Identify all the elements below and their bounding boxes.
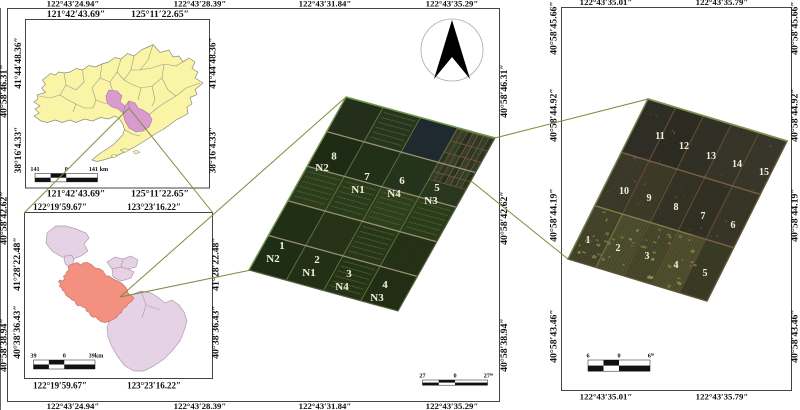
svg-text:40°58′46.31″: 40°58′46.31″	[499, 64, 510, 118]
svg-text:5: 5	[703, 268, 708, 279]
svg-text:11: 11	[655, 131, 664, 142]
svg-text:141 km: 141 km	[89, 166, 109, 173]
svg-text:N3: N3	[370, 292, 384, 304]
svg-text:15: 15	[759, 167, 769, 178]
svg-text:41°44′48.36″: 41°44′48.36″	[13, 37, 24, 88]
svg-text:40°58′44.92″: 40°58′44.92″	[549, 88, 560, 142]
svg-text:122°43′35.79″: 122°43′35.79″	[696, 392, 749, 402]
svg-text:40°58′38.94″: 40°58′38.94″	[499, 318, 510, 372]
svg-text:6: 6	[731, 220, 736, 231]
svg-text:122°19′59.67″: 122°19′59.67″	[33, 381, 87, 391]
svg-text:12: 12	[679, 141, 689, 152]
svg-text:N4: N4	[335, 281, 349, 293]
svg-text:40°58′44.19″: 40°58′44.19″	[790, 188, 800, 242]
svg-text:122°43′35.01″: 122°43′35.01″	[580, 0, 633, 7]
svg-text:122°43′35.79″: 122°43′35.79″	[696, 0, 749, 7]
svg-text:6: 6	[399, 175, 405, 187]
svg-text:4: 4	[674, 260, 679, 271]
svg-text:4: 4	[382, 279, 388, 291]
svg-text:40°58′42.62″: 40°58′42.62″	[0, 191, 10, 245]
svg-text:13: 13	[706, 151, 716, 162]
svg-text:41°44′48.36″: 41°44′48.36″	[208, 37, 219, 88]
svg-text:N2: N2	[315, 162, 329, 174]
svg-text:122°43′31.84″: 122°43′31.84″	[299, 401, 352, 410]
svg-text:0: 0	[63, 353, 66, 360]
svg-text:27: 27	[419, 373, 425, 380]
svg-text:141: 141	[30, 166, 39, 173]
svg-text:40°38′36.43″: 40°38′36.43″	[12, 305, 23, 359]
svg-text:38°16′4.33″: 38°16′4.33″	[208, 127, 219, 174]
svg-text:40°58′44.92″: 40°58′44.92″	[790, 88, 800, 142]
svg-text:2: 2	[616, 243, 621, 254]
svg-text:1: 1	[586, 235, 591, 246]
svg-text:N4: N4	[387, 188, 401, 200]
svg-text:6: 6	[586, 353, 589, 360]
svg-text:7: 7	[701, 211, 706, 222]
svg-text:123°23′16.22″: 123°23′16.22″	[127, 202, 181, 212]
svg-text:122°19′59.67″: 122°19′59.67″	[33, 202, 87, 212]
svg-text:122°43′35.01″: 122°43′35.01″	[580, 392, 633, 402]
svg-text:1: 1	[279, 240, 285, 252]
svg-text:38°16′4.33″: 38°16′4.33″	[13, 127, 24, 174]
svg-text:N1: N1	[351, 184, 364, 196]
svg-text:N1: N1	[302, 267, 315, 279]
svg-text:121°42′43.69″: 121°42′43.69″	[47, 189, 106, 200]
svg-text:41°28′22.48″: 41°28′22.48″	[211, 237, 222, 291]
svg-text:122°43′24.94″: 122°43′24.94″	[47, 401, 100, 410]
svg-text:125°11′22.65″: 125°11′22.65″	[131, 189, 189, 200]
svg-text:122°43′28.39″: 122°43′28.39″	[174, 401, 227, 410]
svg-text:N2: N2	[266, 253, 280, 265]
svg-text:40°58′46.31″: 40°58′46.31″	[0, 64, 10, 118]
svg-text:122°43′35.29″: 122°43′35.29″	[426, 401, 479, 410]
svg-text:14: 14	[732, 159, 742, 170]
svg-text:27m: 27m	[484, 371, 494, 380]
svg-text:125°11′22.65″: 125°11′22.65″	[131, 9, 189, 20]
svg-text:122°43′24.94″: 122°43′24.94″	[47, 0, 100, 9]
svg-text:39km: 39km	[89, 353, 105, 360]
svg-text:41°28′22.48″: 41°28′22.48″	[12, 237, 23, 291]
svg-text:9: 9	[647, 193, 652, 204]
svg-text:122°43′35.29″: 122°43′35.29″	[426, 0, 479, 9]
svg-text:8: 8	[674, 202, 679, 213]
svg-text:40°58′38.94″: 40°58′38.94″	[0, 318, 10, 372]
svg-text:5: 5	[434, 182, 440, 194]
svg-text:10: 10	[619, 186, 629, 197]
svg-text:123°23′16.22″: 123°23′16.22″	[127, 381, 181, 391]
svg-text:40°58′43.46″: 40°58′43.46″	[549, 309, 560, 363]
svg-text:3: 3	[346, 268, 352, 280]
svg-text:40°58′43.46″: 40°58′43.46″	[790, 309, 800, 363]
svg-text:0: 0	[617, 353, 620, 360]
svg-text:7: 7	[364, 171, 370, 183]
svg-text:40°58′42.62″: 40°58′42.62″	[499, 191, 510, 245]
svg-text:6m: 6m	[648, 351, 655, 360]
svg-text:122°43′28.39″: 122°43′28.39″	[174, 0, 227, 9]
svg-text:3: 3	[645, 251, 650, 262]
svg-text:N3: N3	[424, 195, 438, 207]
svg-text:0: 0	[453, 373, 456, 380]
svg-text:40°58′45.66″: 40°58′45.66″	[790, 1, 800, 55]
svg-text:40°58′45.66″: 40°58′45.66″	[549, 1, 560, 55]
svg-text:39: 39	[30, 353, 36, 360]
svg-text:122°43′31.84″: 122°43′31.84″	[299, 0, 352, 9]
svg-text:2: 2	[314, 254, 320, 266]
svg-text:121°42′43.69″: 121°42′43.69″	[47, 9, 106, 20]
svg-text:40°38′36.43″: 40°38′36.43″	[211, 305, 222, 359]
svg-text:40°58′44.19″: 40°58′44.19″	[549, 188, 560, 242]
svg-text:8: 8	[331, 151, 337, 163]
